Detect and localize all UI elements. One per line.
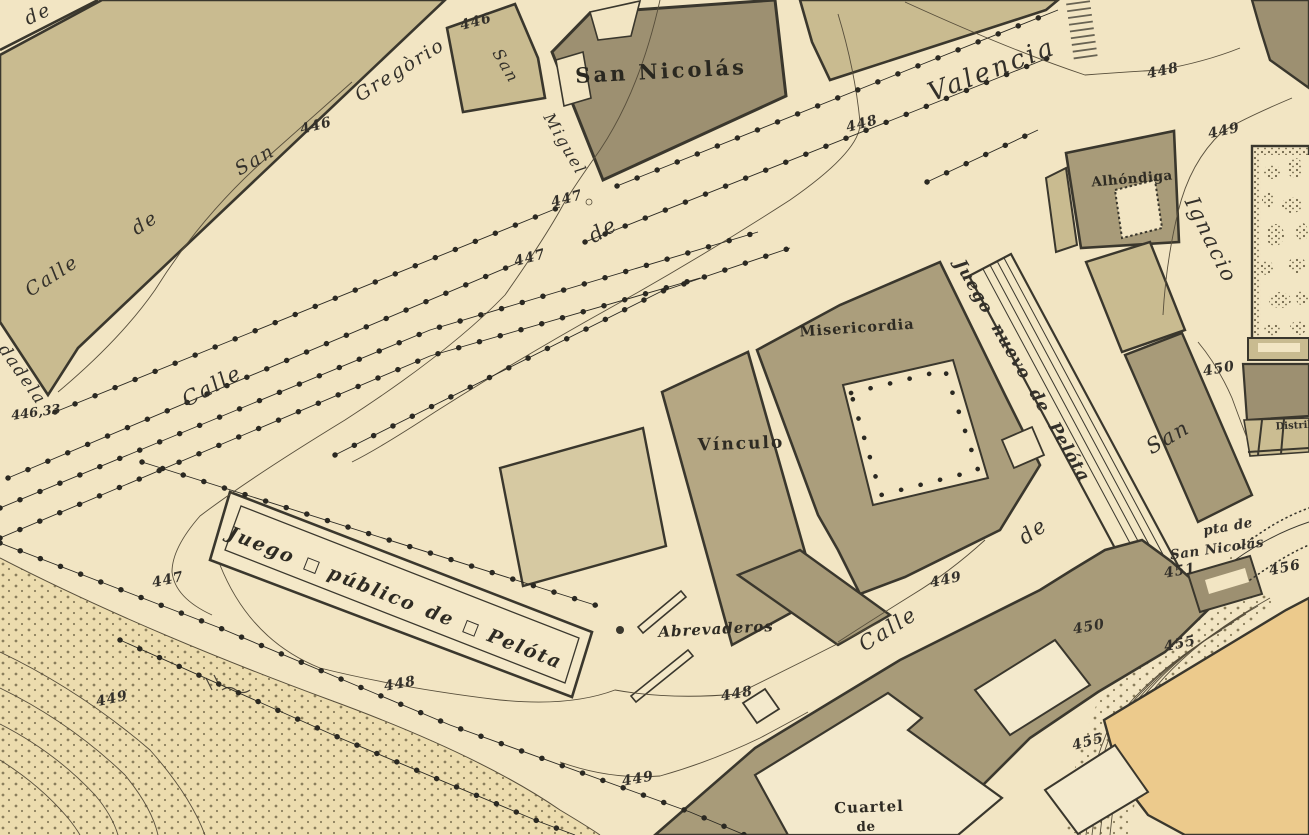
building-label-vinculo: Vínculo [697, 432, 784, 455]
steps-strip [1078, 2, 1086, 60]
building-label-cuartel-de: de [856, 819, 876, 835]
court-marker-icon [303, 557, 320, 574]
alhondiga-building [1046, 131, 1179, 252]
abrevaderos-troughs [616, 591, 693, 702]
right-edge-buildings [1243, 0, 1309, 456]
building-label-cuartel: Cuartel [834, 797, 904, 817]
garden [1252, 146, 1309, 350]
building-label-distrib-partial: Distrib [1275, 419, 1309, 432]
court-marker-icon [463, 620, 480, 637]
map-drawing [0, 0, 1309, 835]
empty-square-block [500, 428, 666, 586]
san-nicolas-church [552, 0, 786, 180]
map-canvas: de Calle de San Gregòrio 446 446 446,33 … [0, 0, 1309, 835]
